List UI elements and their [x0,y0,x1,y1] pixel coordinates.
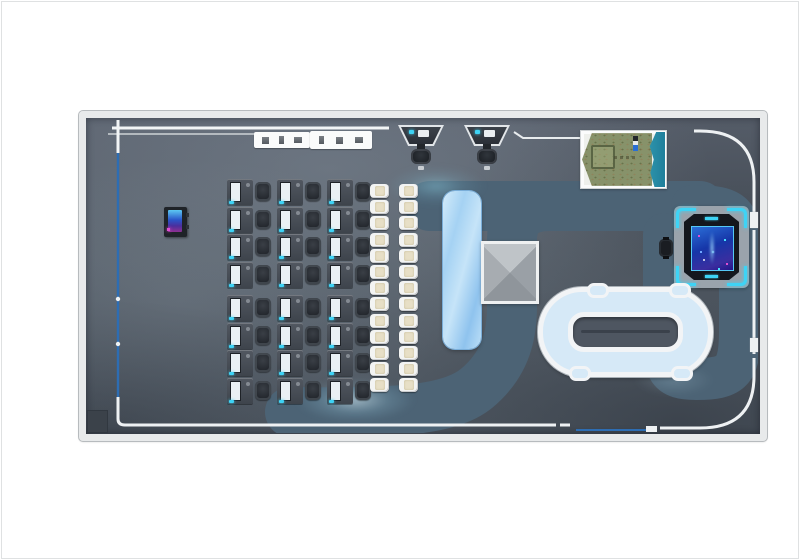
monitor [230,210,241,230]
desk-led [229,256,234,259]
gaming-desk [227,323,253,349]
white-chair-rows [370,184,418,394]
white-chair [399,314,418,328]
desk-mouse [296,183,300,187]
workstation-desk-unit [227,207,271,234]
desk-chair [305,353,321,372]
kiosk-screen [484,130,495,137]
track-bump [669,283,691,298]
chair-cushion [375,235,385,245]
white-chair [399,281,418,295]
gaming-desk [327,262,353,288]
desk-led [279,400,284,403]
workstation-desk-unit [327,179,371,206]
desk-led [229,372,234,375]
gaming-desk [327,207,353,233]
gaming-desk [327,350,353,376]
white-chair [399,378,418,392]
desk-chair [305,326,321,345]
gaming-desk [327,295,353,321]
white-chair [399,346,418,360]
kiosk-stool [411,149,431,164]
desk-led [279,372,284,375]
desk-mouse [246,238,250,242]
desk-chair [355,237,371,256]
white-chair [399,362,418,376]
workstation-desk-unit [277,295,321,322]
reception-shelf [254,132,310,148]
white-chair [370,200,389,214]
white-chair [370,362,389,376]
gaming-desk [277,378,303,404]
desk-chair [255,265,271,284]
monitor [280,298,291,318]
monitor [280,381,291,401]
gaming-desk [327,378,353,404]
workstation-desk-unit [277,378,321,405]
workstation-zone [227,179,377,409]
desk-led [329,229,334,232]
vending-led [167,228,170,231]
workstation-desk-unit [227,350,271,377]
desk-led [279,256,284,259]
desk-led [229,345,234,348]
workstation-desk-unit [277,323,321,350]
desk-chair [255,326,271,345]
kiosk-screen [418,130,429,137]
gaming-desk [277,207,303,233]
workstation-desk-unit [277,207,321,234]
workstation-desk-unit [227,378,271,405]
chair-cushion [375,283,385,293]
monitor [230,182,241,202]
chair-cushion [375,332,385,342]
table-side-stool [659,239,673,257]
gaming-desk [227,179,253,205]
desk-led [279,317,284,320]
standing-kiosk [464,125,510,175]
desk-mouse [296,327,300,331]
kiosk-base [418,166,424,170]
workstation-desk-unit [227,295,271,322]
desk-led [329,201,334,204]
workstation-desk-unit [327,323,371,350]
table-label-strip [705,275,718,278]
chair-cushion [404,348,414,358]
gaming-desk [277,234,303,260]
chair-cushion [375,364,385,374]
workstation-desk-unit [327,207,371,234]
monitor [280,182,291,202]
chair-cushion [404,332,414,342]
white-chair [370,184,389,198]
gaming-desk [227,295,253,321]
desk-led [229,400,234,403]
gaming-desk [227,350,253,376]
venue-floor [86,118,760,434]
chair-cushion [404,299,414,309]
track-bump [587,283,609,298]
gaming-desk [277,323,303,349]
chair-cushion [375,267,385,277]
desk-chair [355,298,371,317]
track-center-island [568,312,683,352]
desk-mouse [346,327,350,331]
terrain-model-frame [580,130,667,189]
desk-led [279,201,284,204]
monitor [330,326,341,346]
monitor [280,326,291,346]
desk-mouse [346,299,350,303]
right-wall-door [750,338,758,352]
white-chair [370,314,389,328]
monitor [280,265,291,285]
gaming-desk [227,234,253,260]
desk-led [279,284,284,287]
workstation-desk-unit [327,262,371,289]
desk-led [279,229,284,232]
chair-cushion [375,348,385,358]
desk-mouse [346,183,350,187]
gaming-desk [227,378,253,404]
desk-chair [255,381,271,400]
desk-led [329,317,334,320]
track-bump [671,366,693,381]
white-chair [370,233,389,247]
desk-led [329,372,334,375]
chair-cushion [375,251,385,261]
desk-chair [255,182,271,201]
monitor [330,182,341,202]
white-chair [370,216,389,230]
desk-chair [255,237,271,256]
desk-mouse [296,354,300,358]
desk-led [329,284,334,287]
monitor [280,353,291,373]
workstation-desk-unit [327,350,371,377]
desk-chair [355,265,371,284]
monitor [330,210,341,230]
chair-cushion [404,251,414,261]
monitor [230,353,241,373]
chair-cushion [375,380,385,390]
shelf-item [279,136,284,144]
desk-chair [355,182,371,201]
white-chair [399,233,418,247]
vending-screen [168,210,182,232]
shelf-item [319,136,324,144]
chair-cushion [404,380,414,390]
chair-cushion [404,364,414,374]
white-chair [370,297,389,311]
white-chair [399,216,418,230]
monitor [230,381,241,401]
gaming-desk [277,262,303,288]
workstation-desk-unit [227,179,271,206]
gaming-desk [277,350,303,376]
workstation-desk-unit [277,262,321,289]
desk-chair [255,353,271,372]
workstation-desk-unit [327,234,371,261]
gaming-desk [277,179,303,205]
chair-cushion [375,316,385,326]
kiosk-led [409,130,414,134]
gaming-desk [227,262,253,288]
white-chair [370,346,389,360]
desk-led [229,284,234,287]
terrain-figure [633,136,638,151]
desk-mouse [346,238,350,242]
desk-chair [305,265,321,284]
white-chair [370,249,389,263]
desk-chair [305,210,321,229]
monitor [330,265,341,285]
white-chair [370,281,389,295]
chair-cushion [404,283,414,293]
desk-led [329,256,334,259]
monitor [280,210,291,230]
monitor [230,265,241,285]
desk-chair [355,381,371,400]
right-wall-door [750,212,758,228]
desk-chair [305,381,321,400]
chair-cushion [375,186,385,196]
gaming-desk [327,179,353,205]
desk-chair [305,237,321,256]
desk-chair [355,210,371,229]
terrain-trail [614,156,636,159]
white-chair [399,265,418,279]
workstation-desk-unit [327,295,371,322]
shelf-item [294,137,302,143]
shelf-item [336,137,343,144]
desk-chair [355,353,371,372]
desk-mouse [296,238,300,242]
desk-chair [305,298,321,317]
desk-led [329,345,334,348]
gaming-desk [227,207,253,233]
white-chair [370,378,389,392]
reception-shelf [310,131,372,149]
screen-pixels [698,235,700,237]
white-chair [399,330,418,344]
monitor [230,237,241,257]
desk-chair [305,182,321,201]
gaming-desk [327,323,353,349]
track-bump [569,366,591,381]
table-label-strip [705,217,718,220]
floor-plan-render [0,0,800,560]
desk-mouse [296,266,300,270]
kiosk-led [475,130,480,134]
desk-mouse [346,382,350,386]
desk-mouse [296,211,300,215]
desk-chair [255,298,271,317]
workstation-desk-unit [277,179,321,206]
white-chair [399,200,418,214]
venue-room [79,111,767,441]
monitor [230,298,241,318]
pyramid-structure [481,241,539,304]
chair-cushion [404,235,414,245]
desk-mouse [246,382,250,386]
desk-led [229,201,234,204]
monitor [330,298,341,318]
workstation-desk-unit [227,262,271,289]
chair-cushion [404,202,414,212]
shelf-item [355,137,363,143]
desk-mouse [246,183,250,187]
gaming-desk [327,234,353,260]
bar-counter [443,191,481,349]
shelf-item [262,137,269,144]
desk-led [329,400,334,403]
desk-mouse [246,211,250,215]
chair-cushion [404,186,414,196]
monitor [230,326,241,346]
chair-cushion [375,218,385,228]
chair-cushion [375,202,385,212]
white-chair [370,265,389,279]
kiosk-base [484,166,490,170]
monitor [330,381,341,401]
desk-chair [355,326,371,345]
chair-cushion [404,218,414,228]
monitor [330,237,341,257]
standing-kiosk [398,125,444,175]
chair-cushion [404,316,414,326]
arcade-vending-machine [164,207,187,237]
mini-race-track [538,287,713,377]
game-table-screen [691,226,734,271]
desk-led [229,317,234,320]
desk-mouse [246,299,250,303]
desk-mouse [296,382,300,386]
desk-mouse [246,354,250,358]
terrain-pen [591,145,615,169]
desk-mouse [246,327,250,331]
game-table-pad [674,206,749,288]
monitor [330,353,341,373]
floor-mat [87,410,108,433]
white-chair [399,184,418,198]
desk-mouse [246,266,250,270]
workstation-desk-unit [277,234,321,261]
gaming-desk [277,295,303,321]
desk-led [279,345,284,348]
chair-cushion [404,267,414,277]
desk-chair [255,210,271,229]
workstation-desk-unit [227,323,271,350]
desk-mouse [346,266,350,270]
white-chair [370,330,389,344]
kiosk-stool [477,149,497,164]
workstation-desk-unit [227,234,271,261]
monitor [280,237,291,257]
desk-mouse [296,299,300,303]
desk-mouse [346,354,350,358]
workstation-desk-unit [327,378,371,405]
chair-cushion [375,299,385,309]
desk-led [229,229,234,232]
desk-mouse [346,211,350,215]
white-chair [399,249,418,263]
white-chair [399,297,418,311]
workstation-desk-unit [277,350,321,377]
